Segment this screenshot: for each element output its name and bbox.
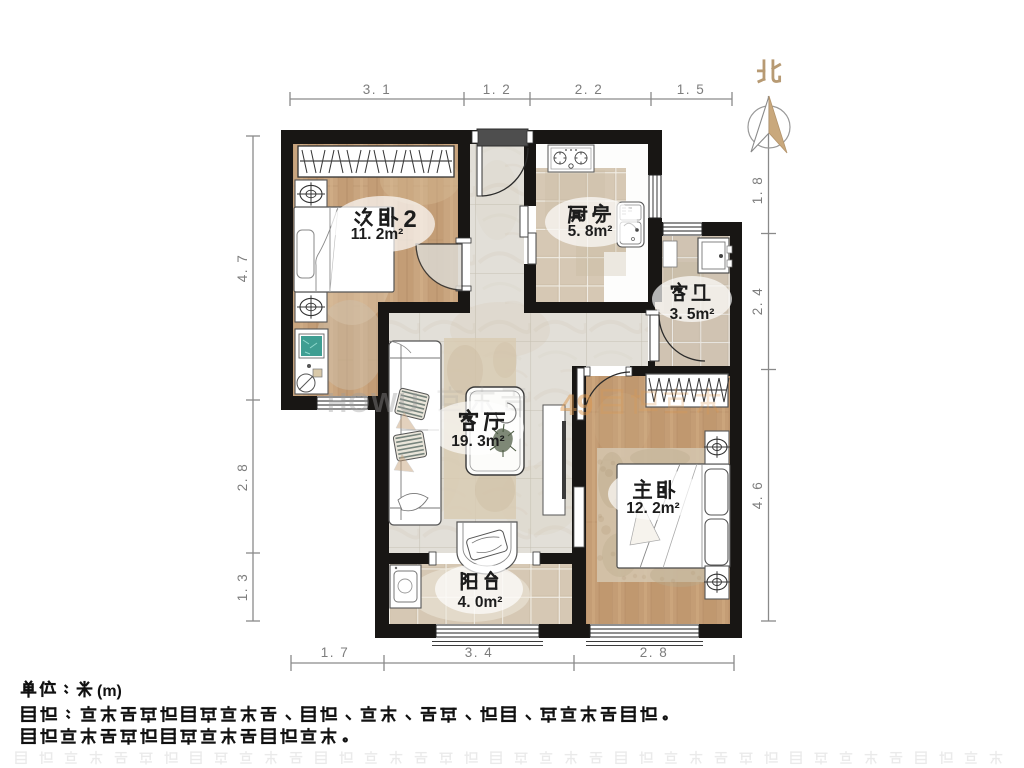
svg-text:3. 1: 3. 1 xyxy=(363,82,392,97)
svg-text:3. 4: 3. 4 xyxy=(465,645,494,660)
svg-text:49: 49 xyxy=(560,389,593,422)
svg-text:HOWU: HOWU xyxy=(327,387,420,418)
svg-text:(m): (m) xyxy=(97,683,122,700)
svg-text:4. 7: 4. 7 xyxy=(235,254,250,283)
svg-text:4. 6: 4. 6 xyxy=(750,481,765,510)
svg-text:1. 7: 1. 7 xyxy=(321,645,350,660)
svg-text:1. 2: 1. 2 xyxy=(483,82,512,97)
svg-text:3. 5m²: 3. 5m² xyxy=(670,306,715,323)
svg-text:2. 4: 2. 4 xyxy=(750,287,765,316)
svg-text:2: 2 xyxy=(403,206,416,233)
svg-text:5. 8m²: 5. 8m² xyxy=(568,223,613,240)
svg-text:2. 8: 2. 8 xyxy=(235,463,250,492)
svg-text:1. 8: 1. 8 xyxy=(750,176,765,205)
svg-text:2. 2: 2. 2 xyxy=(575,82,604,97)
svg-text:4. 0m²: 4. 0m² xyxy=(458,594,503,611)
svg-text:19. 3m²: 19. 3m² xyxy=(451,433,504,450)
svg-text:1. 5: 1. 5 xyxy=(677,82,706,97)
svg-text:11. 2m²: 11. 2m² xyxy=(351,226,404,243)
svg-text:1. 3: 1. 3 xyxy=(235,573,250,602)
svg-text:12. 2m²: 12. 2m² xyxy=(626,500,679,517)
svg-text:2. 8: 2. 8 xyxy=(640,645,669,660)
